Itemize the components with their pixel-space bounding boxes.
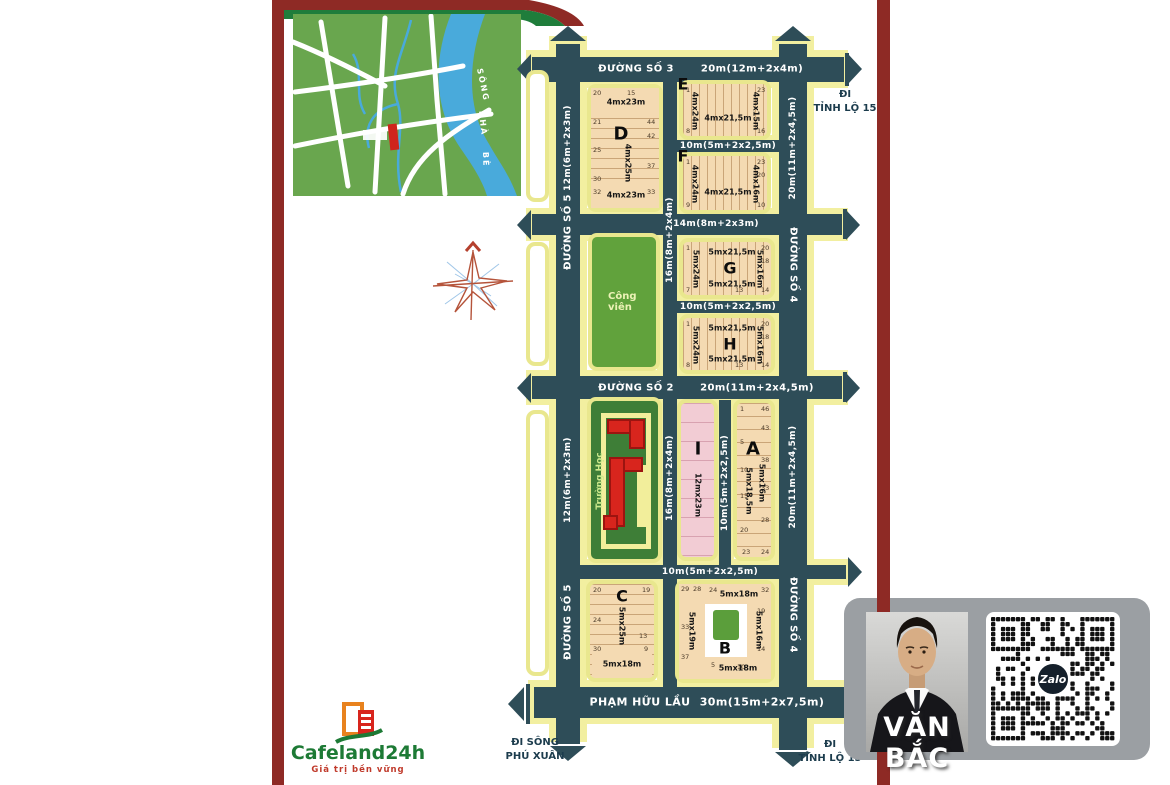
dim-label: 5mx25m (618, 607, 627, 646)
dim-label: 5mx16m (756, 326, 765, 365)
road-dim-duong-so-2: 20m(11m+2x4,5m) (700, 383, 814, 394)
block-b: 29 28 33 37 24 32 19 14 5 10 5mx19m 5mx1… (675, 580, 775, 683)
left-maroon-bar (272, 0, 284, 785)
dim-label: 5mx18,5m (745, 467, 754, 514)
inset-location-map: SÔNG NHÀ BÈ (293, 14, 521, 196)
road-dim-duong-so-5-upper: 12m(6m+2x3m) (563, 105, 573, 191)
arrow-east-r3 (846, 210, 860, 240)
block-c: 20 19 24 13 30 9 C 5mx25m 5mx18m (586, 580, 658, 682)
arrow-east-r6 (848, 557, 862, 587)
dim-label: 5mx16m (758, 464, 767, 503)
block-west-2 (526, 242, 549, 366)
block-b-letter: B (719, 639, 731, 658)
dim-label: 4mx24m (691, 165, 700, 204)
exit-tinh-lo-15-top: ĐITỈNH LỘ 15 (813, 88, 876, 116)
arrow-east-r1 (848, 54, 862, 84)
dim-label: 4mx23m (607, 98, 646, 107)
dim-label: 4mx16m (752, 165, 761, 204)
block-d: 20 15 21 44 42 25 37 30 32 33 4mx23m D 4… (587, 84, 663, 212)
road-dim-10m-ia: 10m(5m+2x2,5m) (720, 435, 730, 531)
road-dim-pham-huu-lau: 30m(15m+2x7,5m) (700, 696, 825, 709)
road-dim-10m-gh: 10m(5m+2x2,5m) (680, 302, 776, 312)
arrow-west-r3 (517, 210, 531, 240)
road-label-duong-so-4-upper: ĐƯỜNG SỐ 4 (788, 227, 799, 303)
park-label: Công viên (608, 291, 640, 313)
road-label-duong-so-3: ĐƯỜNG SỐ 3 (598, 64, 674, 75)
agent-name: VĂN BẮC (852, 712, 982, 774)
land-plot-map: SÔNG NHÀ BÈ (0, 0, 1170, 785)
arrow-east-r5 (846, 373, 860, 403)
compass-icon (425, 240, 520, 325)
road-dim-14m: 14m(8m+2x3m) (673, 219, 759, 229)
dim-label: 5mx16m (755, 611, 764, 650)
block-c-letter: C (616, 587, 628, 606)
dim-label: 5mx24m (692, 250, 701, 289)
road-dim-duong-so-4-lower: 20m(11m+2x4,5m) (788, 426, 798, 529)
block-a-letter: A (746, 439, 760, 460)
block-h-letter: H (723, 335, 736, 354)
road-label-duong-so-5-lower: ĐƯỜNG SỐ 5 (563, 584, 574, 660)
school-label: Trường Học (595, 452, 605, 509)
dim-label: 5mx24m (692, 326, 701, 365)
road-label-pham-huu-lau: PHẠM HỮU LẦU (590, 696, 691, 709)
dim-label: 5mx21,5m (708, 355, 755, 364)
cafeland-logo-tagline: Giá trị bền vững (288, 765, 428, 775)
river-label-be: BÈ (481, 152, 493, 168)
road-dim-duong-so-5-lower: 12m(6m+2x3m) (563, 437, 573, 523)
arrow-north-d5 (550, 26, 586, 41)
dim-label: 4mx15m (752, 92, 761, 131)
road-dim-16m-lower: 16m(8m+2x4m) (665, 435, 675, 521)
arrow-north-d4 (775, 26, 811, 41)
road-dim-10m-ef: 10m(5m+2x2,5m) (680, 141, 776, 151)
zalo-badge: Zalo (1036, 662, 1070, 696)
cafeland-logo-icon (330, 700, 386, 746)
block-truong-hoc: Trường Học (587, 397, 662, 563)
block-d-letter: D (614, 124, 629, 145)
block-g-letter: G (723, 259, 736, 278)
dim-label: 5mx21,5m (708, 248, 755, 257)
dim-label: 5mx21,5m (708, 280, 755, 289)
road-label-duong-so-2: ĐƯỜNG SỐ 2 (598, 383, 674, 394)
dim-label: 5mx18m (719, 664, 758, 673)
exit-song-phu-xuan: ĐI SÔNGPHÚ XUÂN (506, 736, 565, 764)
block-f: 1 23 20 9 10 4mx24m F 4mx21,5m 4mx16m (679, 152, 771, 214)
dim-label: 12mx23m (694, 473, 703, 517)
dim-label: 4mx23m (607, 191, 646, 200)
dim-label: 5mx16m (756, 250, 765, 289)
road-dim-duong-so-3: 20m(12m+2x4m) (701, 64, 803, 75)
dim-label: 5mx18m (720, 590, 759, 599)
block-b-park (713, 610, 739, 640)
arrow-west-r7 (508, 687, 524, 721)
road-dim-16m-upper: 16m(8m+2x4m) (665, 197, 675, 283)
block-a: 1 46 43 5 10 38 33 15 28 20 23 24 A 5mx1… (733, 399, 775, 561)
block-west-1 (526, 70, 549, 202)
cafeland-logo-text: Cafeland24h (288, 742, 428, 764)
road-dim-10m-ab: 10m(5m+2x2,5m) (662, 567, 758, 577)
road-dim-duong-so-4-upper: 20m(11m+2x4,5m) (788, 97, 798, 200)
road-label-duong-so-5-upper: ĐƯỜNG SỐ 5 (563, 194, 574, 270)
block-h: 1 20 18 8 13 14 5mx24m 5mx21,5m H 5mx21,… (679, 314, 775, 374)
block-e: 1 23 8 16 4mx24m E 4mx21,5m 4mx15m (679, 80, 771, 140)
dim-label: 4mx24m (691, 92, 700, 131)
block-e-letter: E (678, 75, 689, 94)
dim-label: 5mx19m (688, 612, 697, 651)
dim-label: 5mx18m (603, 660, 642, 669)
dim-label: 4mx21,5m (704, 188, 751, 197)
arrow-west-r5 (517, 373, 531, 403)
block-i-letter: I (695, 439, 702, 460)
block-west-3 (526, 410, 549, 676)
block-cong-vien: Công viên (588, 233, 660, 371)
dim-label: 5mx21,5m (708, 324, 755, 333)
road-label-duong-so-4-lower: ĐƯỜNG SỐ 4 (788, 577, 799, 653)
block-i: I 12mx23m (677, 399, 718, 561)
dim-label: 4mx21,5m (704, 114, 751, 123)
block-g: 1 20 18 7 13 14 5mx24m 5mx21,5m G 5mx21,… (679, 238, 775, 299)
qr-code: Zalo (986, 612, 1120, 746)
dim-label: 4mx25m (624, 144, 633, 183)
